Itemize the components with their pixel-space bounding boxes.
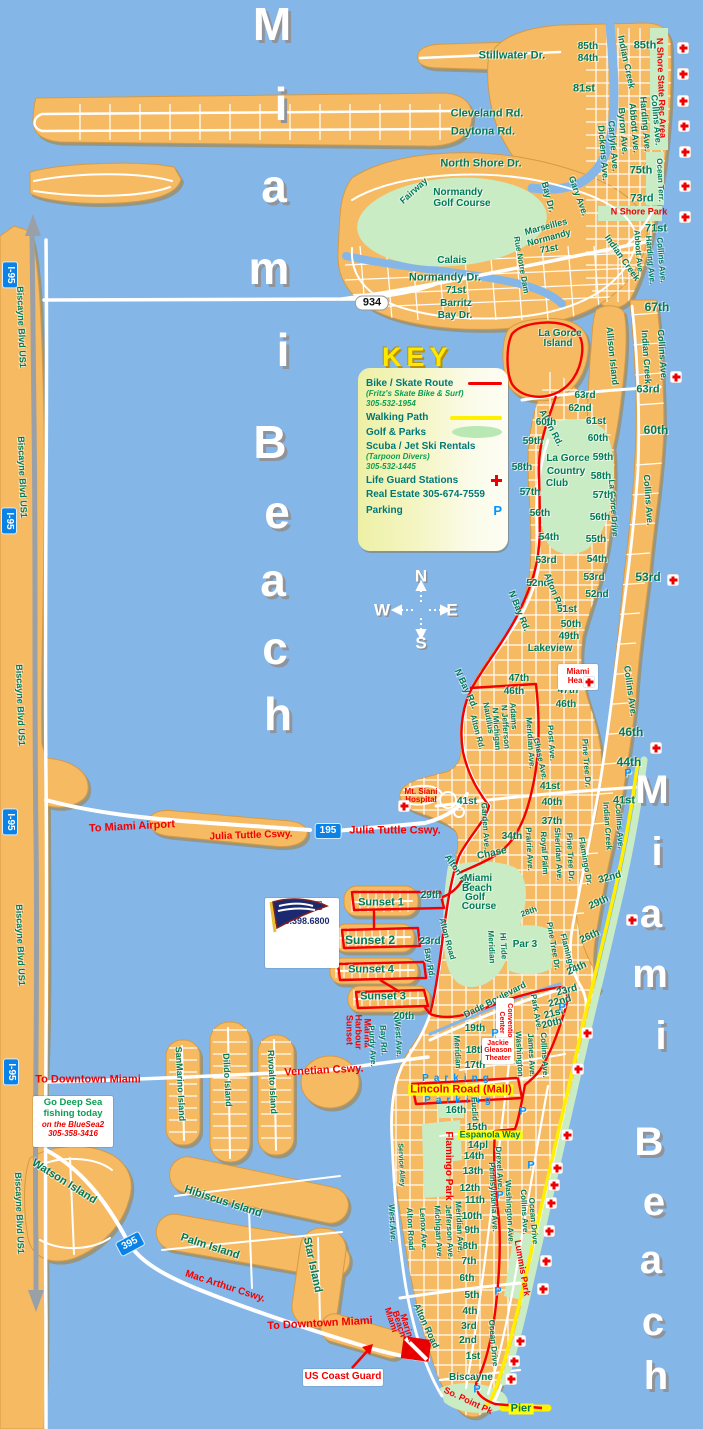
map-label: 46th [504,687,525,697]
big-letter-left: m [249,245,290,291]
highway-shield-934: 934 [355,296,389,311]
map-label: 67th [645,301,670,313]
map-label: 1st [466,1352,480,1362]
big-letter-left: h [264,691,292,737]
map-label: Pine Tree Dr. [565,833,576,882]
deep-sea-fishing-ad: Go Deep Sea fishing today on the BlueSea… [33,1096,113,1147]
lifeguard-station-icon [584,677,595,688]
map-label: 53rd [635,571,660,583]
map-label: James Ave. [526,1033,536,1077]
map-label: Biscayne Blvd US1 [15,286,27,368]
lifeguard-station-icon [671,372,682,383]
map-label: 46th [556,700,577,710]
map-label: 56th [530,509,551,519]
map-label: Prairie Ave. [524,827,534,871]
parking-icon: P [494,1287,501,1298]
key-entry-label: Life Guard Stations [366,475,458,486]
lifeguard-station-icon [678,96,689,107]
key-entry-sub: 305-532-1954 [366,399,502,409]
map-label: Bay Rd. [378,1025,388,1055]
key-entry: Life Guard Stations [366,475,502,486]
parking-icon: P [491,1029,498,1040]
map-label: Harbour [354,1014,363,1049]
map-label: 13th [463,1167,484,1177]
map-label: Washington [514,1031,524,1077]
compass-w: W [374,602,390,619]
label-sunset-4: Sunset 4 [348,965,394,976]
map-label: Meridian [486,930,496,963]
label-to-downtown-miami-west: To Downtown Miami [35,1075,141,1086]
map-label: 84th [578,54,599,64]
key-symbol-red-line-icon [468,382,502,385]
highway-shield-i-95: I-95 [2,261,18,288]
key-entry-label: Parking [366,505,403,516]
map-label: N Michigan [491,707,502,750]
key-entry-label: Bike / Skate Route [366,378,453,389]
key-entry: Bike / Skate Route [366,378,502,389]
map-label: 9th [465,1226,480,1236]
fishing-ad-line2: fishing today [33,1109,113,1120]
map-label: 63rd [574,391,595,401]
map-label: Normandy Dr. [409,273,481,284]
lifeguard-station-icon [651,743,662,754]
map-label: 60th [588,434,609,444]
lifeguard-station-icon [549,1180,560,1191]
big-letter-left: i [275,81,288,127]
big-letter-right: i [655,1016,666,1056]
map-label: North Shore Dr. [440,159,521,170]
map-label: Meridian Ave. [454,1201,465,1253]
us-coast-guard: US Coast Guard [303,1369,383,1386]
parking-icon: P [558,1003,565,1014]
map-label: 85th [634,41,657,52]
label-normandy-golf-course: Normandy [433,188,482,198]
map-label: Golf Course [433,199,490,209]
map-label: 7th [462,1257,477,1267]
map-label: Biscayne Blvd US1 [14,904,26,986]
lifeguard-station-icon [541,1256,552,1267]
lifeguard-station-icon [546,1198,557,1209]
map-label: West Ave. [387,1204,397,1242]
lifeguard-station-icon [679,121,690,132]
lifeguard-station-icon [399,801,410,812]
map-label: West Ave. [393,1019,403,1057]
map-label: 3rd [461,1322,477,1332]
jackie-gleason-theater: JackieGleasonTheater [482,1038,514,1064]
map-label: 50th [561,620,582,630]
label-sunset-harbour-marina: Sunset [345,1015,354,1045]
key-symbol-yellow-line-icon [450,416,502,420]
label-lincoln-road-mall: Lincoln Road (Mall) [408,1085,513,1096]
big-letter-right: M [635,770,668,810]
map-label: 62nd [568,404,591,414]
map-label: 19th [465,1024,486,1034]
label-n-shore-park: N Shore Park [611,208,668,217]
map-artwork [0,0,703,1429]
compass-s: S [415,635,426,652]
key-entry-label: Golf & Parks [366,427,426,438]
key-title: KEY [382,342,453,373]
label-flamingo-park: Flamingo Park [443,1132,453,1201]
label-espanola-way: Espanola Way [458,1131,523,1140]
label-dilido-island: Dilido Island [221,1053,233,1107]
map-label: 57th [593,491,614,501]
map-label: 81st [573,84,595,95]
big-letter-left: a [260,557,286,603]
map-label: Biscayne Blvd US1 [14,664,26,746]
map-label: Parking [422,1074,494,1084]
map-label: 53rd [583,573,604,583]
lifeguard-station-icon [573,1064,584,1075]
lifeguard-station-icon [509,1356,520,1367]
big-letter-right: B [635,1122,664,1162]
map-label: 57th [520,488,541,498]
map-label: Island [544,339,573,349]
map-label: Post Ave. [546,725,556,761]
map-label: 14th [464,1152,485,1162]
map-label: 59th [593,453,614,463]
map-label: Barritz [440,299,472,309]
map-label: Bay Dr. [438,311,472,321]
lifeguard-station-icon [627,915,638,926]
map-label: 34th [502,832,523,842]
big-letter-left: B [253,419,286,465]
label-julia-tuttle-cswy: Julia Tuttle Cswy. [349,826,440,837]
map-label: 40th [542,798,563,808]
big-letter-left: c [262,625,288,671]
map-label: 85th [578,42,599,52]
lifeguard-station-icon [552,1163,563,1174]
map-label: Lakeview [528,644,572,654]
map-label: Calais [437,256,466,266]
key-entry: Walking Path [366,412,502,423]
map-label: Sheridan Ave. [553,827,564,880]
lifeguard-station-icon [680,181,691,192]
map-label: 2nd [459,1336,477,1346]
map-label: 59th [523,437,544,447]
compass-e: E [446,602,457,619]
map-label: 6th [460,1274,475,1284]
big-letter-right: m [632,954,668,994]
map-box-line: Theater [485,1055,510,1063]
big-letter-right: a [640,1240,662,1280]
lifeguard-station-icon [668,575,679,586]
key-symbol-green-ellipse-icon [452,426,502,438]
map-label: 14pl [468,1141,488,1151]
map-label: 56th [590,513,611,523]
lifeguard-station-icon [538,1284,549,1295]
highway-shield-i-95: I-95 [2,808,18,835]
miami-beach-map: KEY Bike / Skate Route(Fritz's Skate Bik… [0,0,703,1429]
map-label: 52nd [585,590,608,600]
map-label: 41st [540,782,560,792]
map-box-line: Gleason [484,1047,512,1055]
map-label: 4th [463,1307,478,1317]
parking-icon: P [624,769,631,780]
compass-rose: N W E S [370,560,472,655]
map-label: Stillwater Dr. [479,51,546,62]
key-entry: Golf & Parks [366,426,502,438]
lifeguard-station-icon [678,69,689,80]
map-label: 60th [536,418,557,428]
map-label: Ocean Terr. [655,158,665,202]
map-label: 23rd [419,937,440,947]
big-letter-right: e [643,1182,665,1222]
map-key-legend: Bike / Skate Route(Fritz's Skate Bike & … [358,368,508,551]
map-label: Biscayne Blvd US1 [13,1172,25,1254]
lifeguard-station-icon [678,43,689,54]
map-label: Hospital [405,796,437,804]
map-box-line: Convention [505,1004,513,1043]
key-symbol-cross-icon [491,475,502,486]
lifeguard-station-icon [582,1028,593,1039]
lifeguard-station-icon [680,147,691,158]
key-entry-label: Walking Path [366,412,428,423]
parking-icon: P [496,1191,503,1202]
highway-shield-i-95: I-95 [1,507,17,534]
map-label: 73rd [630,194,653,205]
key-entry: Real Estate 305-674-7559 [366,489,502,500]
map-label: 47th [509,674,530,684]
map-label: Jefferson Ave. [444,1205,455,1260]
map-label: Purdy Ave. [367,1025,377,1067]
lifeguard-station-icon [506,1374,517,1385]
map-label: 11th [465,1196,485,1206]
label-pier: Pier [509,1404,534,1415]
map-label: 12th [460,1184,481,1194]
lifeguard-station-icon [544,1226,555,1237]
map-label: Daytona Rd. [451,127,515,138]
map-label: Club [546,479,568,489]
big-letter-right: a [640,894,662,934]
map-label: Michigan Ave. [433,1205,444,1259]
label-sunset-2: Sunset 2 [345,934,395,946]
map-label: 55th [586,535,607,545]
map-label: Meridian [452,1035,462,1068]
lifeguard-station-icon [680,212,691,223]
highway-shield-i-95: I-95 [3,1058,19,1085]
map-label: 54th [539,533,560,543]
key-entry-sub: (Fritz's Skate Bike & Surf) [366,389,502,399]
key-entry-label: Real Estate 305-674-7559 [366,489,485,500]
map-label: Alton Road [405,1207,415,1250]
map-label: 60th [644,424,669,436]
lifeguard-station-icon [562,1130,573,1141]
map-label: 71st [645,224,667,235]
map-label: Lenox Ave. [418,1208,428,1250]
map-label: 44th [617,756,642,768]
map-label: 51st [557,605,577,615]
map-box-line: Jackie [487,1040,508,1048]
map-label: Hi Tide [498,933,507,960]
map-label: 10th [462,1212,483,1222]
big-letter-left: i [277,327,290,373]
map-box-line: US Coast Guard [305,1372,382,1383]
key-entry: ParkingP [366,503,502,518]
map-label: 41st [457,797,477,807]
big-letter-right: h [644,1356,668,1396]
map-label: 63rd [636,385,659,396]
big-letter-left: M [253,1,291,47]
label-sunset-3: Sunset 3 [360,992,406,1003]
big-letter-right: c [642,1302,664,1342]
map-label: 49th [559,632,580,642]
parking-icon: P [527,1161,534,1172]
key-entry-label: Scuba / Jet Ski Rentals [366,441,476,452]
label-sunset-1: Sunset 1 [358,898,404,909]
parking-icon: P [473,1385,480,1396]
map-label: 37th [542,817,563,827]
highway-shield-195: 195 [315,823,342,839]
big-letter-left: e [264,489,290,535]
map-label: 16th [446,1106,467,1116]
key-entry: Scuba / Jet Ski Rentals [366,441,502,452]
map-label: Course [462,902,496,912]
lifeguard-station-icon [515,1336,526,1347]
map-label: Royal Palm [539,831,549,875]
shyc-yacht-club-ad: SHYC 305.398.6800 [265,898,339,968]
map-label: Country [547,467,585,477]
map-label: 75th [630,166,653,177]
map-label: Biscayne Blvd US1 [16,436,28,518]
key-symbol-p-icon: P [493,503,502,518]
map-label: Collins Ave. [539,1032,549,1078]
big-letter-left: a [261,163,287,209]
fishing-ad-line3: on the BlueSea2 [33,1120,113,1129]
map-label: 71st [446,286,466,296]
key-entry-sub: (Tarpoon Divers) [366,452,502,462]
map-label: Biscayne [449,1373,493,1383]
map-label: 58th [512,463,533,473]
big-letter-right: i [651,832,662,872]
map-label: 54th [587,555,608,565]
map-label: 29th [421,891,442,901]
shyc-flag-icon [265,898,329,934]
key-entry-sub: 305-532-1445 [366,462,502,472]
map-label: 61st [586,417,606,427]
map-label: Cleveland Rd. [451,109,524,120]
parking-icon: P [519,1107,526,1118]
label-par-3: Par 3 [513,940,537,950]
map-label: Euclid [469,1097,478,1121]
label-la-gorce-country-club: La Gorce [546,454,589,464]
map-label: 46th [619,726,644,738]
fishing-ad-line4: 305-358-3416 [33,1129,113,1138]
map-label: 53rd [535,556,556,566]
compass-n: N [415,568,427,585]
map-label: 5th [465,1291,480,1301]
